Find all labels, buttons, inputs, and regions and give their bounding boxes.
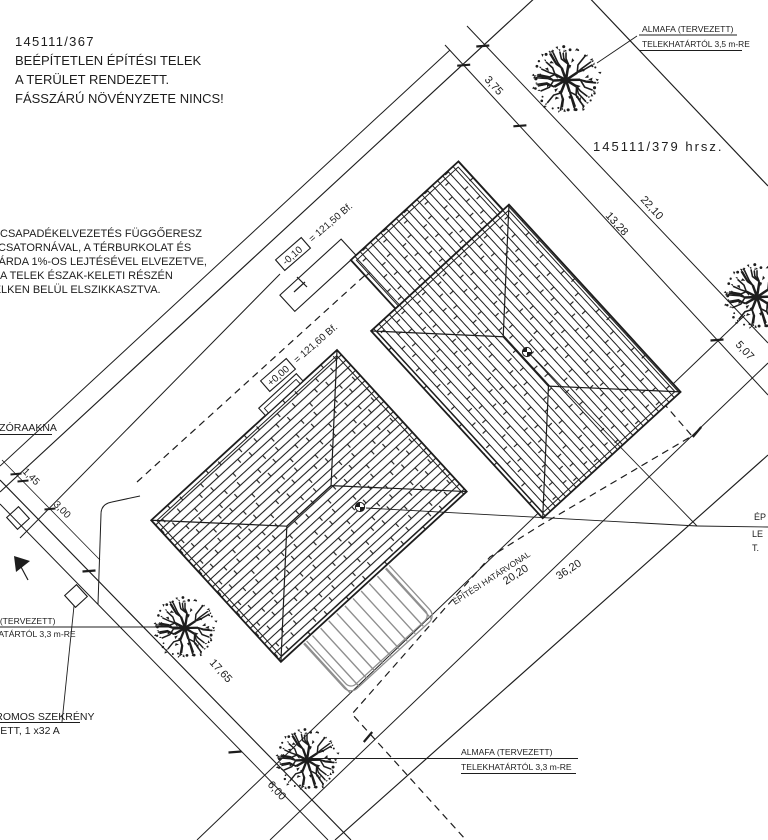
svg-text:ALMAFA (TERVEZETT): ALMAFA (TERVEZETT) [461,747,553,757]
svg-text:145111/367: 145111/367 [15,34,95,49]
svg-text:T.: T. [752,543,759,553]
svg-text:TELEKHATÁRTÓL 3,3 m-RE: TELEKHATÁRTÓL 3,3 m-RE [0,629,76,639]
svg-text:CSATORNÁVAL, A TÉRBURKOLAT ÉS: CSATORNÁVAL, A TÉRBURKOLAT ÉS [0,241,191,254]
svg-text:JÁRDA 1%-OS LEJTÉSÉVEL ELVEZET: JÁRDA 1%-OS LEJTÉSÉVEL ELVEZETVE, [0,255,207,268]
svg-text:145111/379 hrsz.: 145111/379 hrsz. [593,139,724,154]
svg-text:A TELEK ÉSZAK-KELETI RÉSZÉN: A TELEK ÉSZAK-KELETI RÉSZÉN [0,269,173,282]
svg-text:BEÉPÍTETLEN ÉPÍTÉSI TELEK: BEÉPÍTETLEN ÉPÍTÉSI TELEK [15,53,201,68]
svg-text:A TERÜLET RENDEZETT.: A TERÜLET RENDEZETT. [15,72,169,87]
svg-text:GÁZÓRAAKNA: GÁZÓRAAKNA [0,421,57,434]
svg-text:ÉP: ÉP [754,512,766,522]
svg-text:LE: LE [752,529,763,539]
svg-text:TELEKHATÁRTÓL 3,5 m-RE: TELEKHATÁRTÓL 3,5 m-RE [642,39,750,49]
svg-text:TELKEN BELÜL ELSZIKKASZTVA.: TELKEN BELÜL ELSZIKKASZTVA. [0,284,161,296]
svg-text:ELEKTROMOS SZEKRÉNY: ELEKTROMOS SZEKRÉNY [0,710,94,723]
svg-text:ALMAFA (TERVEZETT): ALMAFA (TERVEZETT) [0,616,56,626]
svg-text:FÁSSZÁRÚ NÖVÉNYZETE NINCS!: FÁSSZÁRÚ NÖVÉNYZETE NINCS! [15,91,224,106]
svg-text:CSAPADÉKELVEZETÉS FÜGGŐERESZ: CSAPADÉKELVEZETÉS FÜGGŐERESZ [0,226,202,240]
svg-text:TELEKHATÁRTÓL 3,3 m-RE: TELEKHATÁRTÓL 3,3 m-RE [461,762,572,772]
svg-text:TERVEZETT, 1 x32 A: TERVEZETT, 1 x32 A [0,725,60,737]
svg-text:ALMAFA (TERVEZETT): ALMAFA (TERVEZETT) [642,24,734,34]
